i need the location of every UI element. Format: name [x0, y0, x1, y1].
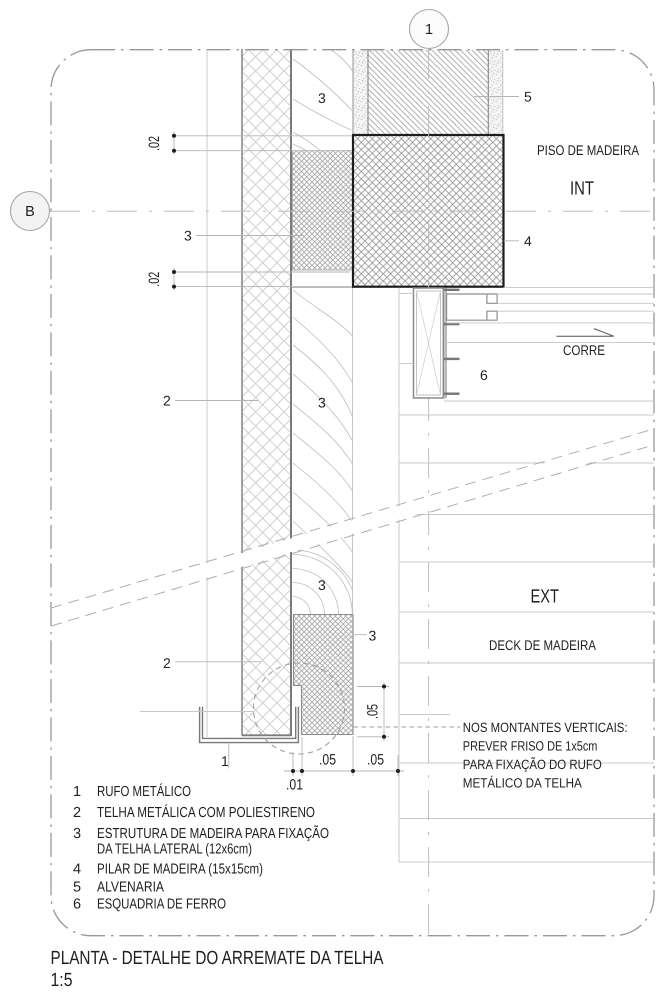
svg-text:6: 6	[480, 367, 488, 383]
svg-text:3: 3	[318, 395, 326, 411]
svg-text:DA TELHA LATERAL (12x6cm): DA TELHA LATERAL (12x6cm)	[97, 842, 252, 858]
svg-text:TELHA METÁLICA COM POLIESTIREN: TELHA METÁLICA COM POLIESTIRENO	[97, 804, 315, 821]
svg-text:6: 6	[73, 897, 81, 913]
svg-text:2: 2	[73, 805, 81, 821]
svg-text:CORRE: CORRE	[563, 342, 605, 358]
svg-text:3: 3	[184, 227, 192, 243]
svg-text:.02: .02	[146, 136, 163, 151]
svg-text:B: B	[25, 204, 35, 220]
svg-text:RUFO METÁLICO: RUFO METÁLICO	[97, 783, 191, 800]
svg-text:1:5: 1:5	[51, 970, 73, 991]
svg-text:3: 3	[73, 826, 81, 842]
svg-text:.02: .02	[146, 272, 163, 287]
svg-text:2: 2	[163, 393, 171, 409]
svg-text:3: 3	[318, 577, 326, 593]
svg-text:ESQUADRIA DE FERRO: ESQUADRIA DE FERRO	[97, 897, 226, 913]
svg-text:4: 4	[73, 862, 81, 878]
svg-text:PARA FIXAÇÃO DO RUFO: PARA FIXAÇÃO DO RUFO	[463, 757, 602, 772]
svg-text:DECK DE MADEIRA: DECK DE MADEIRA	[489, 637, 597, 653]
svg-text:1: 1	[221, 753, 229, 769]
svg-text:ESTRUTURA DE MADEIRA PARA FIXA: ESTRUTURA DE MADEIRA PARA FIXAÇÃO	[97, 825, 329, 842]
svg-text:.05: .05	[319, 752, 336, 769]
svg-text:NOS MONTANTES VERTICAIS:: NOS MONTANTES VERTICAIS:	[463, 720, 628, 735]
svg-text:5: 5	[73, 880, 81, 896]
svg-text:PISO DE MADEIRA: PISO DE MADEIRA	[537, 142, 640, 158]
svg-text:4: 4	[524, 233, 532, 249]
svg-text:1: 1	[425, 22, 433, 38]
svg-text:3: 3	[318, 90, 326, 106]
svg-text:.05: .05	[365, 704, 382, 719]
svg-text:INT: INT	[570, 179, 594, 200]
svg-text:3: 3	[369, 628, 377, 644]
svg-text:ALVENARIA: ALVENARIA	[97, 880, 164, 896]
svg-text:PILAR DE MADEIRA (15x15cm): PILAR DE MADEIRA (15x15cm)	[97, 862, 263, 878]
svg-text:EXT: EXT	[531, 587, 560, 608]
svg-text:METÁLICO DA TELHA: METÁLICO DA TELHA	[463, 776, 582, 791]
svg-text:.01: .01	[286, 777, 303, 794]
svg-text:2: 2	[163, 655, 171, 671]
svg-text:PREVER FRISO DE 1x5cm: PREVER FRISO DE 1x5cm	[463, 739, 598, 754]
svg-text:PLANTA - DETALHE DO ARREMATE D: PLANTA - DETALHE DO ARREMATE DA TELHA	[51, 948, 384, 969]
svg-text:5: 5	[524, 89, 532, 105]
svg-text:1: 1	[73, 784, 81, 800]
svg-text:.05: .05	[367, 752, 384, 769]
